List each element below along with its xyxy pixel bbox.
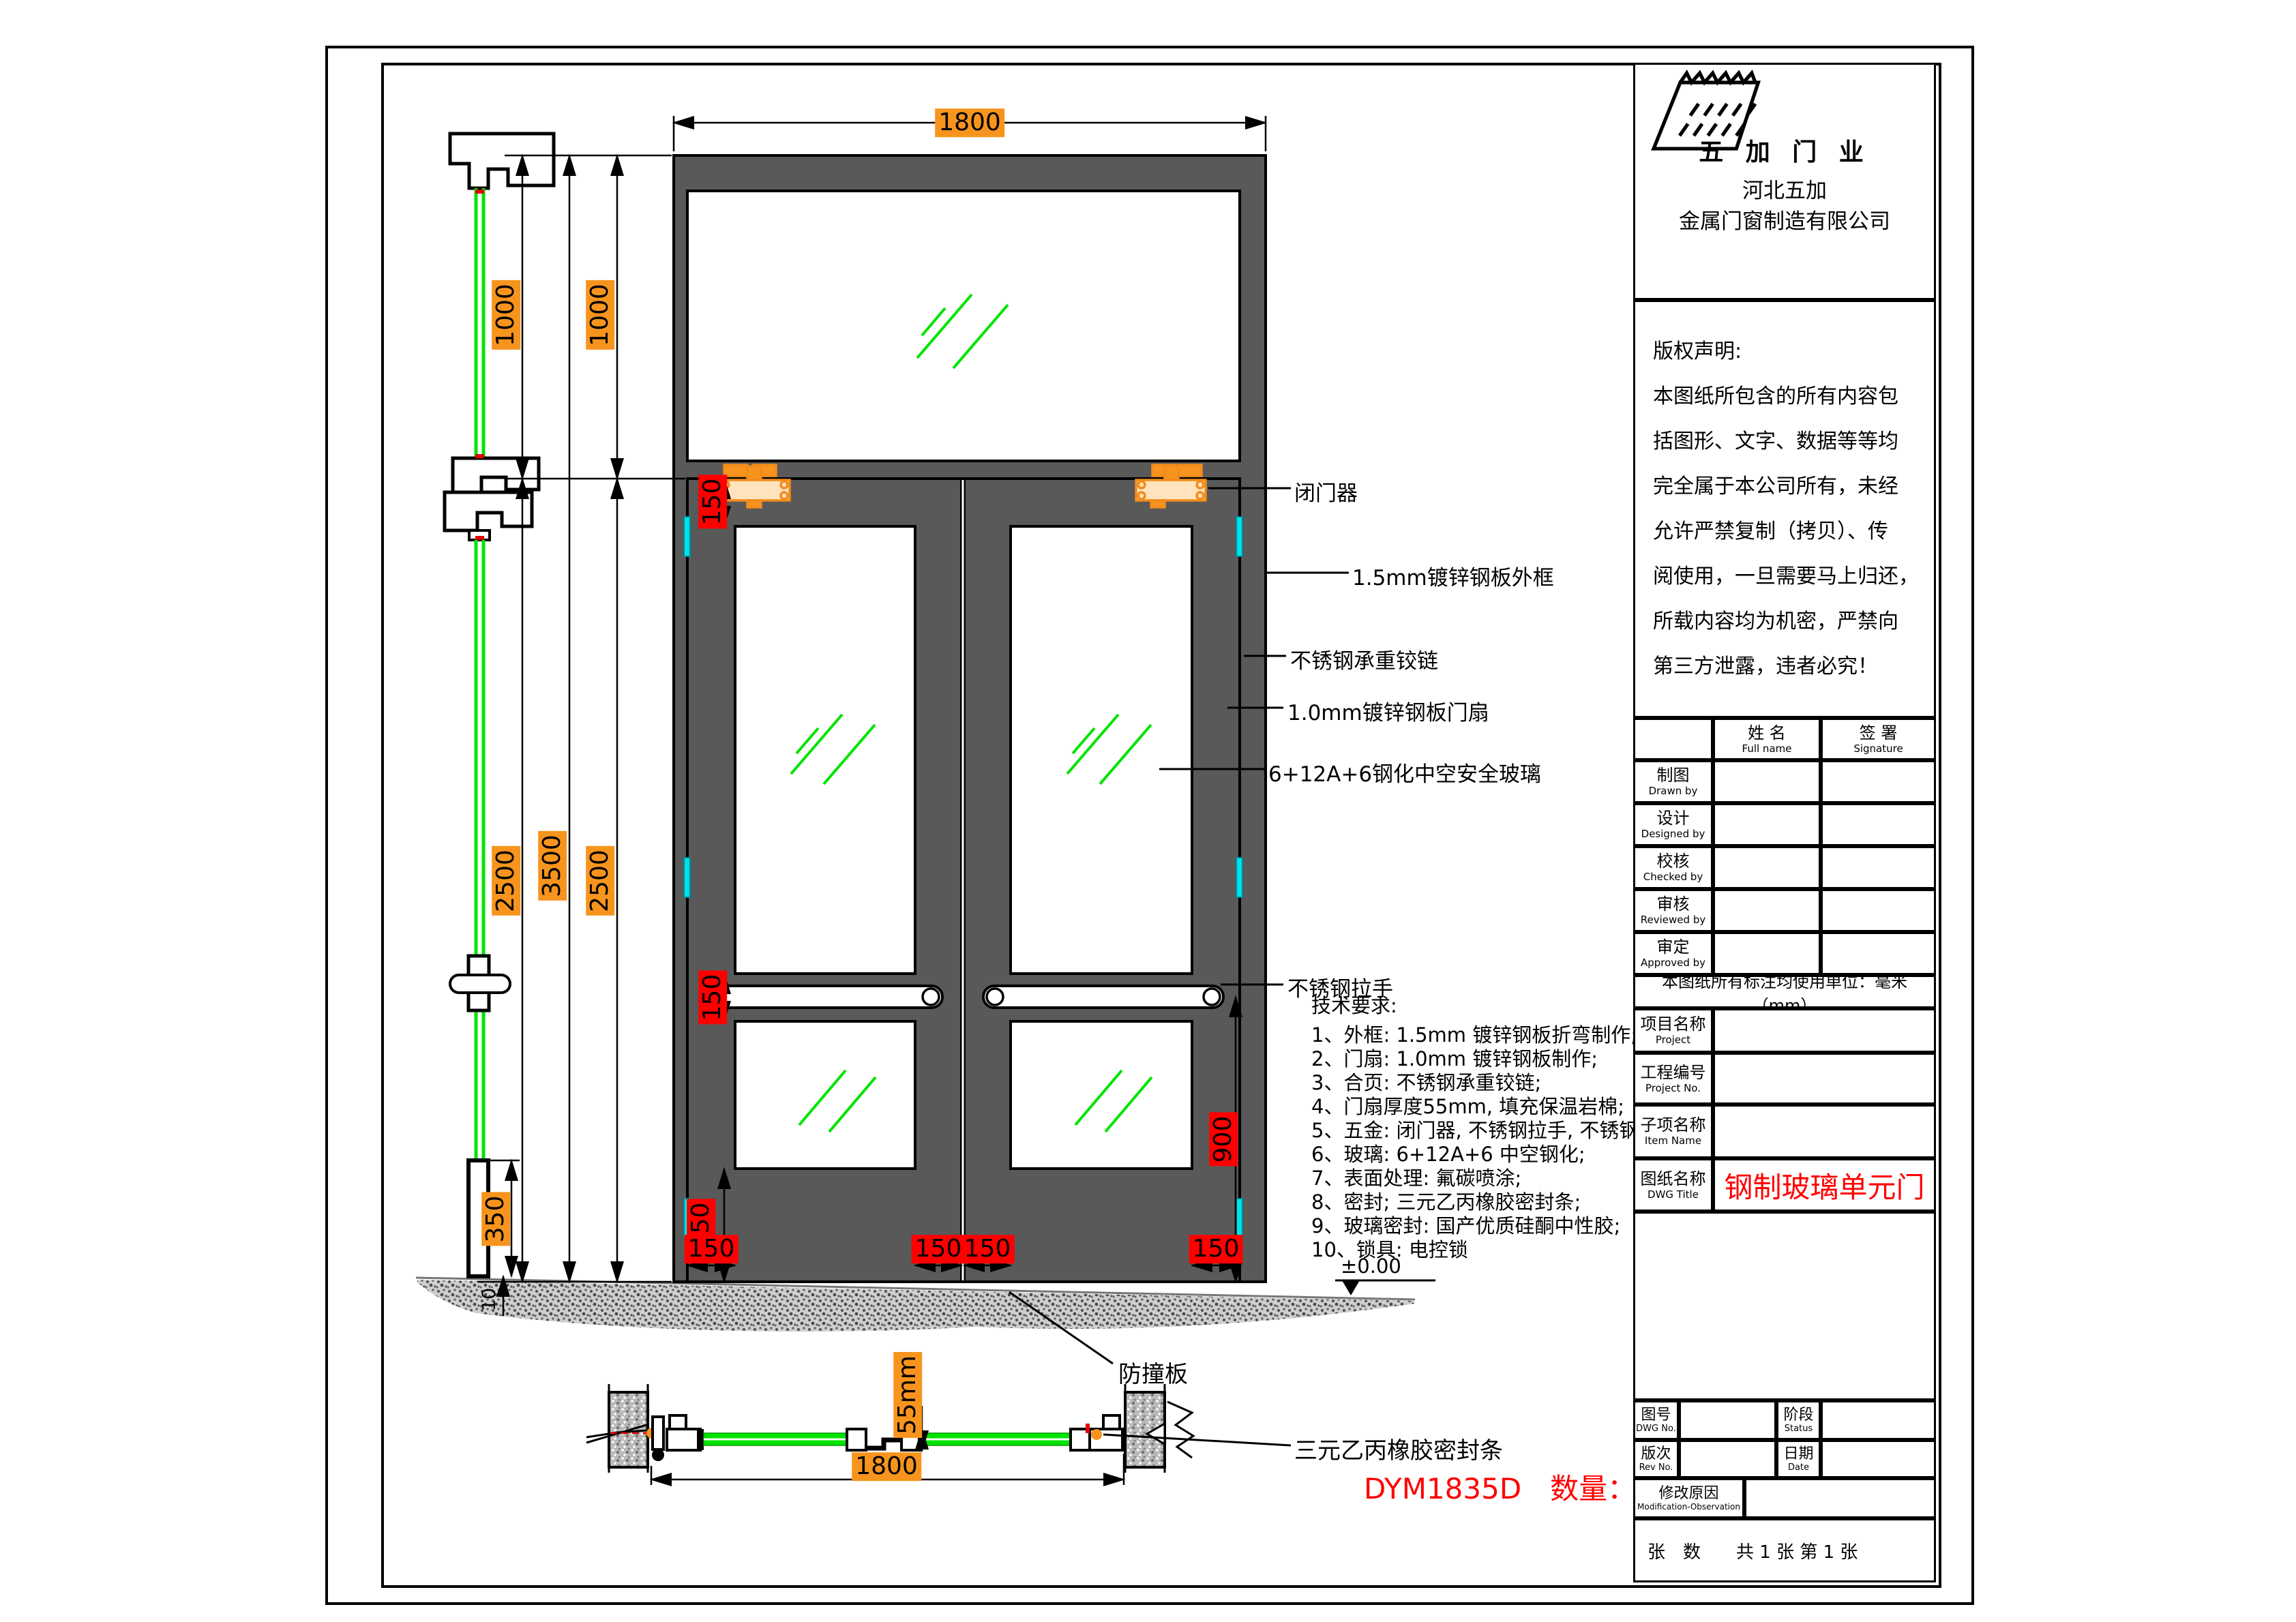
transom-glass — [687, 191, 1240, 461]
sign-header-name: 姓 名 Full name — [1713, 718, 1821, 760]
tech-item: 4、门扇厚度55mm, 填充保温岩棉; — [1311, 1095, 1685, 1119]
dwgno-label: 图号 DWG No. — [1633, 1400, 1679, 1440]
tech-item: 2、门扇: 1.0mm 镀锌钢板制作; — [1311, 1047, 1685, 1071]
company-logo-icon — [1635, 65, 1778, 153]
status-value — [1821, 1400, 1936, 1440]
copyright-cell: 版权声明: 本图纸所包含的所有内容包 括图形、文字、数据等等均 完全属于本公司所… — [1633, 300, 1936, 718]
field-dwgtitle-label: 图纸名称DWG Title — [1633, 1158, 1713, 1212]
plan-hinge — [653, 1417, 664, 1450]
field-projectno-value — [1713, 1053, 1936, 1105]
units-note-cell: 本图纸所有标注均使用单位：毫米（mm） — [1633, 975, 1936, 1008]
status-label: 阶段 Status — [1776, 1400, 1821, 1440]
dim-leaf-thickness: 55mm — [893, 1352, 922, 1438]
dwgno-value — [1679, 1400, 1776, 1440]
rev-value — [1679, 1440, 1776, 1478]
tech-item: 10、锁具: 电控锁 — [1311, 1238, 1685, 1262]
tech-requirements: 技术要求: 1、外框: 1.5mm 镀锌钢板折弯制作; 2、门扇: 1.0mm … — [1311, 994, 1685, 1262]
dim-stile-4: 150 — [1189, 1235, 1243, 1263]
plan-frame-left — [667, 1429, 700, 1450]
date-value — [1821, 1440, 1936, 1478]
dim-total-height: 3500 — [538, 831, 567, 901]
tech-item: 5、五金: 闭门器, 不锈钢拉手, 不锈钢插销; — [1311, 1119, 1685, 1143]
sign-row-label: 审核Reviewed by — [1633, 889, 1713, 932]
drawing-sheet: 1800 1000 2500 3500 1000 2500 350 10 55m… — [0, 0, 2296, 1622]
seal-dot — [1091, 1429, 1102, 1440]
sign-row-sig — [1821, 846, 1936, 889]
sheet-count-row: 张 数 共 1 张 第 1 张 — [1633, 1518, 1936, 1582]
copyright-line: 阅使用，一旦需要马上归还， — [1653, 554, 1919, 599]
sign-row-sig — [1821, 803, 1936, 846]
dwg-title-value: 钢制玻璃单元门 — [1713, 1158, 1936, 1212]
rev-label: 版次 Rev No. — [1633, 1440, 1679, 1478]
label-door-closer: 闭门器 — [1294, 476, 1358, 507]
copyright-line: 第三方泄露，违者必究！ — [1653, 644, 1878, 689]
dim-plan-width: 1800 — [852, 1452, 921, 1481]
dim-stile-1: 150 — [685, 1235, 739, 1263]
level-mark-triangle — [1342, 1280, 1360, 1295]
dim-transom-b: 1000 — [586, 280, 614, 350]
sign-row-name — [1713, 889, 1821, 932]
sign-header-signature: 签 署 Signature — [1821, 718, 1936, 760]
sheet-count-text: 张 数 共 1 张 第 1 张 — [1648, 1538, 1858, 1563]
tech-item: 1、外框: 1.5mm 镀锌钢板折弯制作; — [1311, 1023, 1685, 1047]
label-outer-frame: 1.5mm镀锌钢板外框 — [1352, 560, 1554, 591]
sig-header-cn: 签 署 — [1860, 724, 1898, 743]
sign-row-label: 制图Drawn by — [1633, 760, 1713, 803]
label-hinge: 不锈钢承重铰链 — [1290, 644, 1438, 674]
sign-row-name — [1713, 846, 1821, 889]
field-projectno-label: 工程编号Project No. — [1633, 1053, 1713, 1105]
sign-header-blank — [1633, 718, 1713, 760]
copyright-line: 版权声明: — [1653, 329, 1742, 374]
copyright-line: 允许严禁复制（拷贝）、传 — [1653, 509, 1888, 554]
name-header-en: Full name — [1742, 743, 1792, 755]
company-name-line1: 河北五加 — [1742, 173, 1827, 204]
dim-opening-width: 1800 — [935, 108, 1004, 137]
sig-header-en: Signature — [1853, 743, 1903, 755]
company-logo-cell: 五 加 门 业 河北五加 金属门窗制造有限公司 — [1633, 63, 1936, 300]
date-label: 日期 Date — [1776, 1440, 1821, 1478]
field-item-value — [1713, 1105, 1936, 1158]
dim-door-b: 2500 — [586, 846, 614, 916]
copyright-line: 所载内容均为机密，严禁向 — [1653, 599, 1898, 644]
name-header-cn: 姓 名 — [1748, 724, 1786, 743]
tech-item: 8、密封; 三元乙丙橡胶密封条; — [1311, 1190, 1685, 1214]
copyright-line: 括图形、文字、数据等等均 — [1653, 419, 1898, 464]
dwg-title-text: 钢制玻璃单元门 — [1724, 1165, 1924, 1206]
label-kick-plate: 防撞板 — [1118, 1355, 1188, 1389]
tech-item: 9、玻璃密封: 国产优质硅酮中性胶; — [1311, 1214, 1685, 1238]
dim-stile-2: 150 — [912, 1235, 966, 1263]
modification-label: 修改原因 Modification-Observation — [1633, 1478, 1744, 1518]
copyright-line: 本图纸所包含的所有内容包 — [1653, 374, 1898, 419]
sign-row-name — [1713, 760, 1821, 803]
dim-mid-rail: 150 — [698, 971, 727, 1025]
dim-door-a: 2500 — [492, 846, 520, 916]
dim-stile-3: 150 — [961, 1235, 1015, 1263]
dim-floor-gap: 10 — [479, 1285, 501, 1315]
label-door-leaf: 1.0mm镀锌钢板门扇 — [1287, 695, 1489, 726]
door-elevation — [674, 155, 1266, 1282]
modification-value — [1744, 1478, 1936, 1518]
field-project-value — [1713, 1008, 1936, 1053]
tech-item: 3、合页: 不锈钢承重铰链; — [1311, 1071, 1685, 1095]
tech-title: 技术要求: — [1311, 994, 1685, 1018]
title-block-spacer — [1633, 1212, 1936, 1400]
copyright-line: 完全属于本公司所有，未经 — [1653, 464, 1898, 509]
sign-row-sig — [1821, 760, 1936, 803]
label-glazing: 6+12A+6钢化中空安全玻璃 — [1268, 757, 1541, 787]
tech-item: 6、玻璃: 6+12A+6 中空钢化; — [1311, 1143, 1685, 1167]
label-seal-strip: 三元乙丙橡胶密封条 — [1294, 1432, 1503, 1465]
dim-kick-section: 350 — [481, 1192, 510, 1246]
company-name-line2: 金属门窗制造有限公司 — [1679, 204, 1890, 235]
dim-transom-a: 1000 — [492, 280, 520, 350]
field-project-label: 项目名称Project — [1633, 1008, 1713, 1053]
sign-row-name — [1713, 803, 1821, 846]
ground-hatch — [416, 1278, 1415, 1332]
tech-item: 7、表面处理: 氟碳喷涂; — [1311, 1167, 1685, 1190]
field-item-label: 子项名称Item Name — [1633, 1105, 1713, 1158]
dim-handle-height: 900 — [1209, 1113, 1238, 1167]
sign-row-label: 校核Checked by — [1633, 846, 1713, 889]
sign-row-sig — [1821, 889, 1936, 932]
sign-row-label: 设计Designed by — [1633, 803, 1713, 846]
dim-top-rail: 150 — [698, 475, 727, 529]
